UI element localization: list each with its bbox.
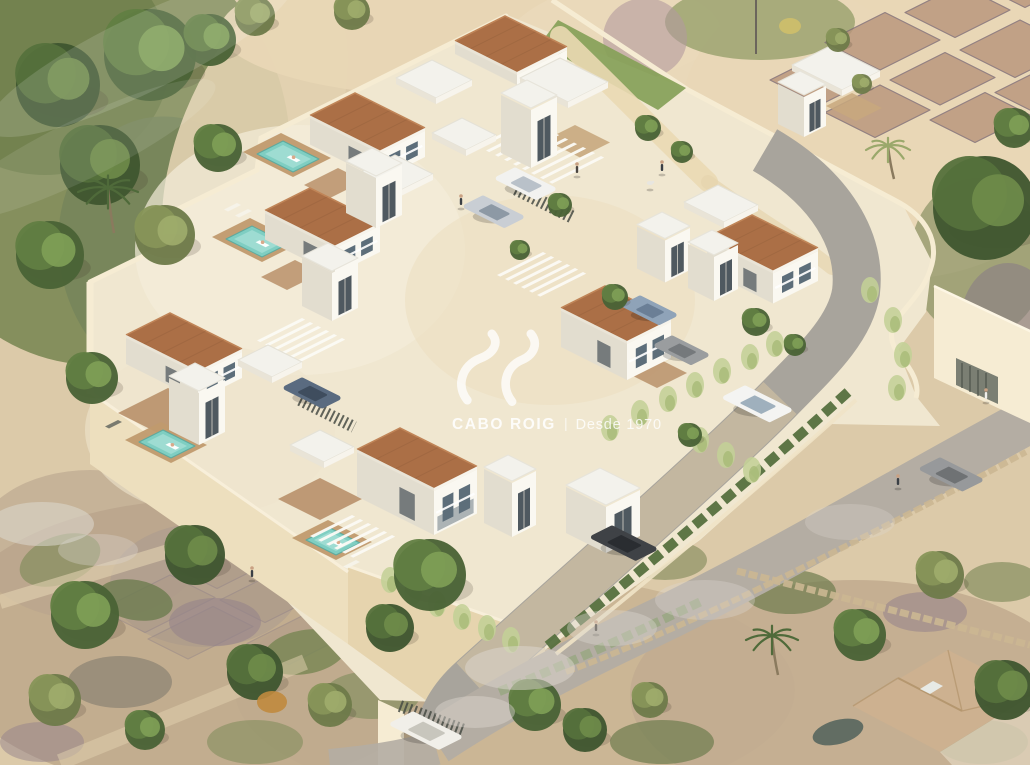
swimmer: [171, 443, 175, 447]
tree: [421, 552, 457, 588]
tree: [998, 671, 1028, 701]
vine: [723, 451, 733, 467]
person-shadow: [895, 488, 902, 491]
person: [575, 162, 579, 166]
vine: [692, 381, 702, 397]
tree: [86, 361, 112, 387]
terrain-patch: [207, 720, 303, 764]
tree: [248, 654, 276, 682]
vine: [607, 424, 617, 440]
person: [251, 570, 253, 577]
person-shadow: [574, 176, 581, 179]
person-shadow: [249, 580, 256, 583]
tree: [645, 120, 658, 133]
dust-cloud: [655, 580, 755, 620]
vine: [900, 351, 910, 367]
person-shadow: [659, 174, 666, 177]
dog: [652, 181, 655, 184]
path: [330, 748, 436, 765]
dust-cloud: [465, 646, 575, 690]
person: [897, 478, 899, 485]
vine: [890, 316, 900, 332]
terrain-patch: [610, 720, 714, 764]
tree: [77, 593, 111, 627]
tree: [212, 132, 236, 156]
vine: [719, 367, 729, 383]
dust-cloud: [58, 534, 138, 566]
flowering-bush: [257, 691, 287, 713]
person: [661, 164, 663, 171]
vine: [459, 613, 469, 629]
swimmer: [261, 240, 265, 244]
dust-cloud: [567, 610, 657, 646]
vine: [665, 395, 675, 411]
terrain-patch: [68, 656, 172, 708]
tree: [580, 716, 602, 738]
tree: [325, 691, 347, 713]
tree: [612, 289, 625, 302]
person-shadow: [983, 402, 990, 405]
scene-svg: [0, 0, 1030, 765]
tree: [42, 233, 76, 267]
person: [985, 392, 987, 399]
dust-cloud: [435, 696, 515, 728]
flowering-bush: [779, 18, 801, 34]
tree: [557, 197, 569, 209]
tree: [158, 216, 188, 246]
tree: [679, 145, 690, 156]
person: [459, 194, 463, 198]
swimmer: [292, 155, 296, 159]
tree: [518, 244, 528, 254]
tree: [140, 717, 160, 737]
person-shadow: [647, 189, 654, 192]
architectural-render: CABO ROIG | Desde 1970: [0, 0, 1030, 765]
tree: [188, 536, 218, 566]
tree: [1009, 115, 1029, 135]
vine: [749, 466, 759, 482]
tree: [835, 32, 847, 44]
person: [250, 566, 254, 570]
tree: [646, 688, 664, 706]
tree: [384, 612, 408, 636]
vine: [772, 340, 782, 356]
person: [460, 198, 462, 205]
tree: [753, 313, 767, 327]
vine: [637, 409, 647, 425]
vine: [747, 353, 757, 369]
person: [896, 474, 900, 478]
tree: [348, 0, 366, 18]
tree: [529, 688, 555, 714]
person: [576, 166, 578, 173]
tree: [49, 683, 75, 709]
tree: [687, 427, 699, 439]
vine: [484, 624, 494, 640]
person-shadow: [458, 208, 465, 211]
person: [660, 160, 664, 164]
terrain-patch: [169, 598, 261, 646]
vine: [867, 286, 877, 302]
tree: [860, 78, 870, 88]
person: [984, 388, 988, 392]
vine: [894, 384, 904, 400]
tree: [854, 618, 880, 644]
dust-cloud: [805, 504, 895, 540]
tree: [792, 338, 803, 349]
tree: [934, 559, 958, 583]
tree: [972, 174, 1024, 226]
